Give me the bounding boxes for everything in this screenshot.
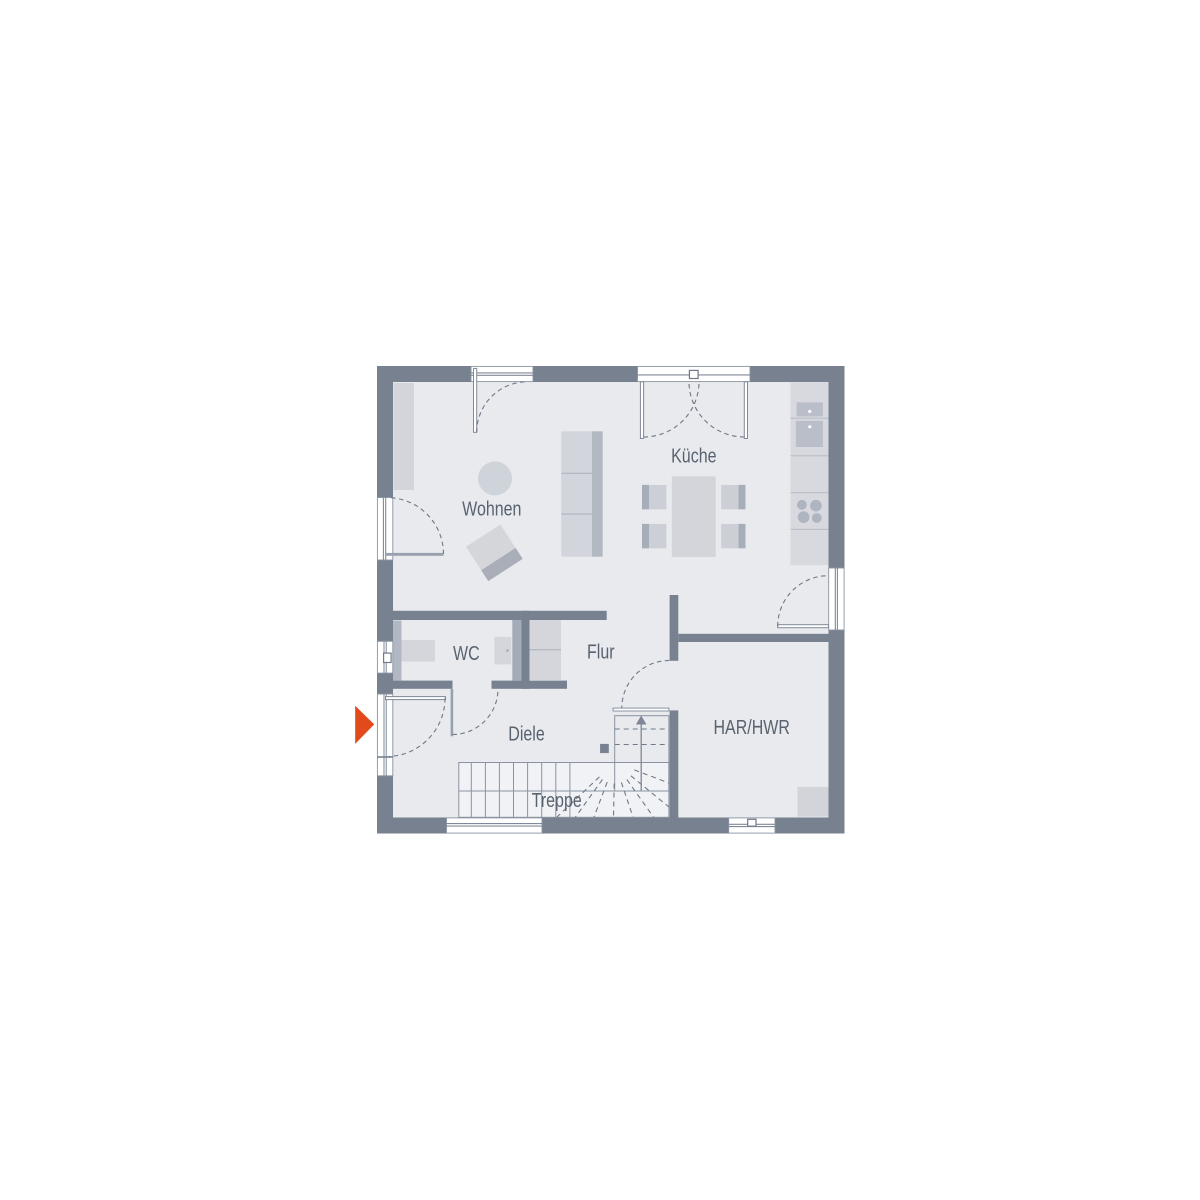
- svg-text:Wohnen: Wohnen: [462, 498, 521, 520]
- svg-text:Küche: Küche: [671, 445, 716, 467]
- svg-text:Treppe: Treppe: [532, 789, 582, 811]
- svg-text:Diele: Diele: [508, 723, 544, 745]
- svg-text:Flur: Flur: [587, 641, 615, 663]
- svg-text:WC: WC: [453, 642, 480, 664]
- svg-text:HAR/HWR: HAR/HWR: [713, 716, 789, 738]
